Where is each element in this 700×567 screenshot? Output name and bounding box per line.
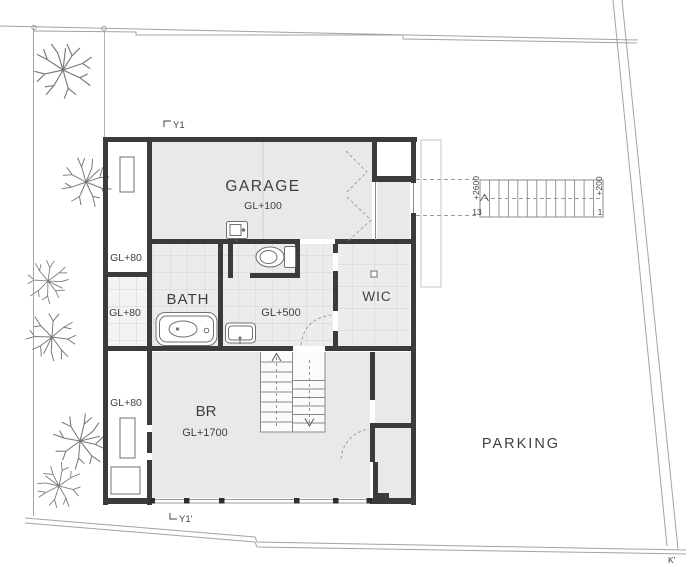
garage-level-label: GL+100 [244,200,282,212]
br-label: BR [196,403,217,420]
room-fills [108,142,411,498]
stair-upper-step-label: 13 [472,207,482,217]
grid-mark-y1-prime: Y1' [179,514,193,525]
hall-level-label: GL+500 [261,307,300,319]
garage-entry-floor [377,182,410,239]
tree-icon [31,457,89,516]
tree-icon [22,306,83,366]
tree-icon [52,150,119,217]
tree-icon [46,408,111,475]
tree-icon [34,44,91,99]
stair-upper-level-label: +2600 [471,176,481,200]
terrace-top-level-label: GL+80 [110,252,142,264]
washbasin [226,323,256,344]
bath-label: BATH [167,291,210,308]
toilet [256,247,296,268]
bathtub [156,313,217,346]
br-level-label: GL+1700 [182,427,228,439]
garage-label: GARAGE [225,178,300,195]
tree-icon [21,254,73,307]
floor-plan-drawing: GARAGE GL+100 BATH GL+500 WIC BR GL+1700… [0,0,700,567]
glass-wall [150,498,373,504]
stair-lower-step-label: 1 [598,207,603,217]
closet-a-floor [375,352,411,423]
y1-tick-icon [164,121,171,127]
stair-lower-level-label: +200 [594,176,604,195]
wic-label: WIC [362,289,391,304]
garage-sink [227,222,248,243]
y1-prime-tick-icon [170,513,177,519]
exterior-stairs [416,180,603,218]
roof-overhang-outline [421,140,441,287]
wic-column [371,271,377,277]
terrace-mid-level-label: GL+80 [109,307,141,319]
terrace-bottom-level-label: GL+80 [110,397,142,409]
grid-mark-y1: Y1 [173,120,185,131]
parking-label: PARKING [482,436,560,452]
floor-plan-canvas: GARAGE GL+100 BATH GL+500 WIC BR GL+1700… [0,0,700,567]
closet-b-floor [375,428,411,498]
boundary-mark-k: K' [668,555,676,565]
